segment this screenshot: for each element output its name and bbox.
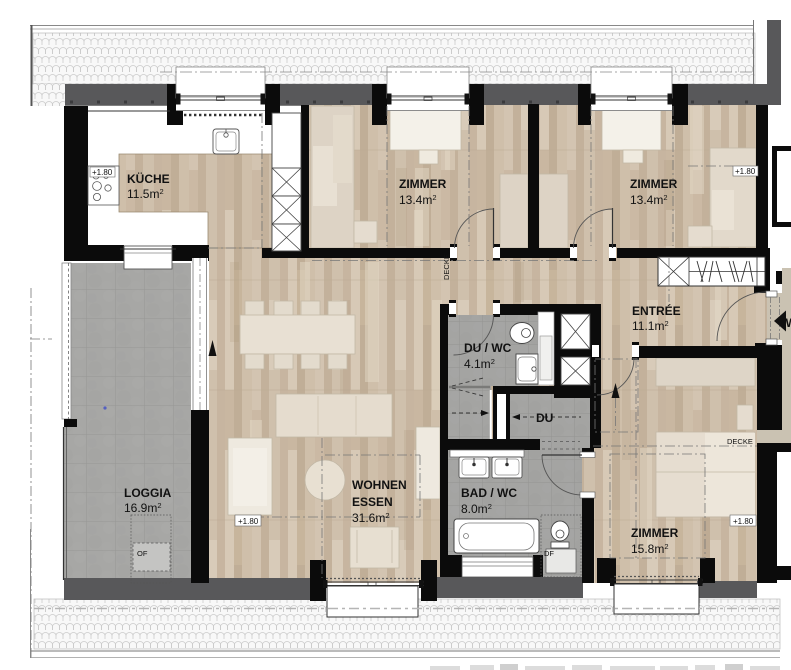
svg-text:OF: OF: [137, 549, 148, 558]
svg-text:KÜCHE: KÜCHE: [127, 171, 170, 186]
svg-text:ENTRÉE: ENTRÉE: [632, 303, 681, 318]
svg-text:+1.80: +1.80: [238, 517, 259, 526]
svg-text:4.1m2: 4.1m2: [464, 357, 495, 371]
svg-text:DECKE: DECKE: [442, 254, 451, 280]
svg-text:DECKE: DECKE: [727, 437, 753, 446]
svg-text:+1.80: +1.80: [92, 168, 113, 177]
svg-text:+1.80: +1.80: [733, 517, 754, 526]
svg-text:31.6m2: 31.6m2: [352, 511, 390, 525]
svg-text:11.1m2: 11.1m2: [632, 319, 669, 333]
svg-text:+1.80: +1.80: [735, 167, 756, 176]
svg-text:DU: DU: [536, 411, 553, 425]
svg-text:8.0m2: 8.0m2: [461, 502, 492, 516]
svg-text:13.4m2: 13.4m2: [399, 193, 437, 207]
svg-text:11.5m2: 11.5m2: [127, 187, 164, 201]
svg-text:BAD / WC: BAD / WC: [461, 486, 517, 500]
svg-text:16.9m2: 16.9m2: [124, 501, 162, 515]
svg-text:ESSEN: ESSEN: [352, 495, 393, 509]
svg-text:WOHNEN: WOHNEN: [352, 478, 407, 492]
svg-text:ZIMMER: ZIMMER: [631, 526, 679, 540]
svg-text:LOGGIA: LOGGIA: [124, 486, 172, 500]
svg-text:15.8m2: 15.8m2: [631, 542, 669, 556]
svg-text:W: W: [786, 316, 791, 330]
svg-text:DU / WC: DU / WC: [464, 341, 512, 355]
svg-text:DF: DF: [544, 549, 554, 558]
svg-text:ZIMMER: ZIMMER: [630, 177, 678, 191]
svg-text:13.4m2: 13.4m2: [630, 193, 668, 207]
svg-text:ZIMMER: ZIMMER: [399, 177, 447, 191]
